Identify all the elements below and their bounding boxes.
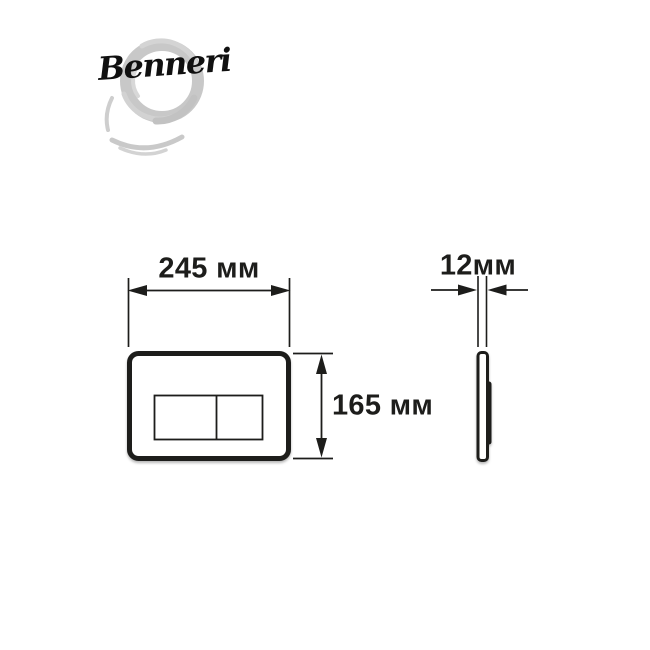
width-dimension-label: 245 мм — [158, 253, 259, 286]
arrowhead-inward-right-icon — [458, 285, 477, 296]
depth-dimension-label: 12мм — [440, 250, 516, 283]
arrowhead-right-icon — [271, 285, 291, 296]
arrowhead-left-icon — [128, 285, 148, 296]
front-view-plate — [130, 354, 289, 459]
height-dimension — [293, 354, 333, 459]
side-profile-outline — [478, 353, 488, 461]
depth-dimension — [431, 276, 528, 347]
flush-buttons-outline — [155, 396, 263, 440]
technical-drawing — [0, 0, 650, 650]
arrowhead-up-icon — [316, 355, 327, 375]
width-dimension — [128, 278, 291, 347]
arrowhead-down-icon — [316, 438, 327, 458]
height-dimension-label: 165 мм — [332, 390, 433, 423]
flush-plate-dimension-diagram: Benneri — [0, 0, 650, 650]
arrowhead-inward-left-icon — [488, 285, 507, 296]
side-view-profile — [478, 353, 492, 461]
